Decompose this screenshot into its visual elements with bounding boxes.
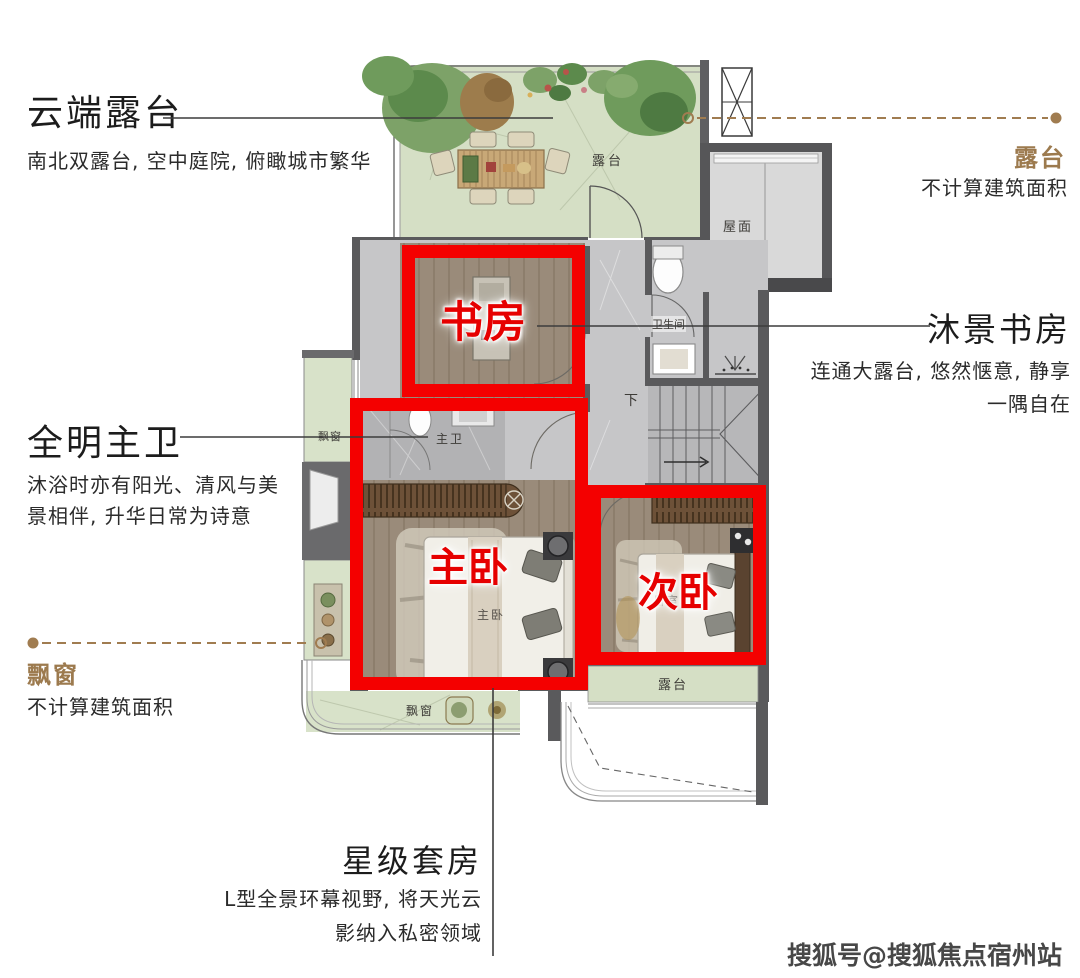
study-annotation-title: 沐景书房 xyxy=(927,303,1071,351)
cloud-terrace-subtitle: 南北双露台, 空中庭院, 俯瞰城市繁华 xyxy=(27,145,371,174)
master-bath-annotation-subtitle: 沐浴时亦有阳光、清风与美 景相伴, 升华日常为诗意 xyxy=(27,470,279,532)
plan-label-terrace-lower: 露台 xyxy=(658,674,688,693)
floorplan-page: 书房 主卧 次卧 露台 屋面 卫生间 下 主卫 飘窗 飘窗 主卧 卧室 露台 云… xyxy=(0,0,1080,978)
study-subtitle-line2: 一隅自在 xyxy=(811,388,1071,421)
suite-subtitle-line2: 影纳入私密领域 xyxy=(160,916,482,950)
suite-title: 星级套房 xyxy=(260,836,482,882)
suite-subtitle-line1: L型全景环幕视野, 将天光云 xyxy=(160,882,482,916)
terrace-right-subtitle: 不计算建筑面积 xyxy=(921,172,1068,201)
master-bath-subtitle-line1: 沐浴时亦有阳光、清风与美 xyxy=(27,470,279,501)
watermark-text: 搜狐号@搜狐焦点宿州站 xyxy=(787,936,1062,972)
bay-window-subtitle: 不计算建筑面积 xyxy=(27,691,174,720)
suite-subtitle: L型全景环幕视野, 将天光云 影纳入私密领域 xyxy=(160,882,482,950)
second-bedroom-label: 次卧 xyxy=(638,560,718,618)
study-annotation-subtitle: 连通大露台, 悠然惬意, 静享 一隅自在 xyxy=(811,355,1071,421)
study-subtitle-line1: 连通大露台, 悠然惬意, 静享 xyxy=(811,355,1071,388)
plan-label-bay-left: 飘窗 xyxy=(318,428,342,444)
master-bath-subtitle-line2: 景相伴, 升华日常为诗意 xyxy=(27,501,279,532)
master-bath-annotation-title: 全明主卫 xyxy=(27,414,183,466)
bay-window-title: 飘窗 xyxy=(27,655,79,690)
terrace-right-title: 露台 xyxy=(1014,138,1066,173)
plan-label-down: 下 xyxy=(624,390,638,410)
cloud-terrace-title: 云端露台 xyxy=(27,84,183,136)
study-room-label: 书房 xyxy=(440,288,526,350)
plan-label-roof: 屋面 xyxy=(723,216,753,235)
plan-label-bay-bottom: 飘窗 xyxy=(406,702,434,719)
master-bedroom-label: 主卧 xyxy=(428,535,508,593)
plan-label-bathroom: 卫生间 xyxy=(651,316,686,332)
plan-label-terrace-top: 露台 xyxy=(592,150,624,169)
